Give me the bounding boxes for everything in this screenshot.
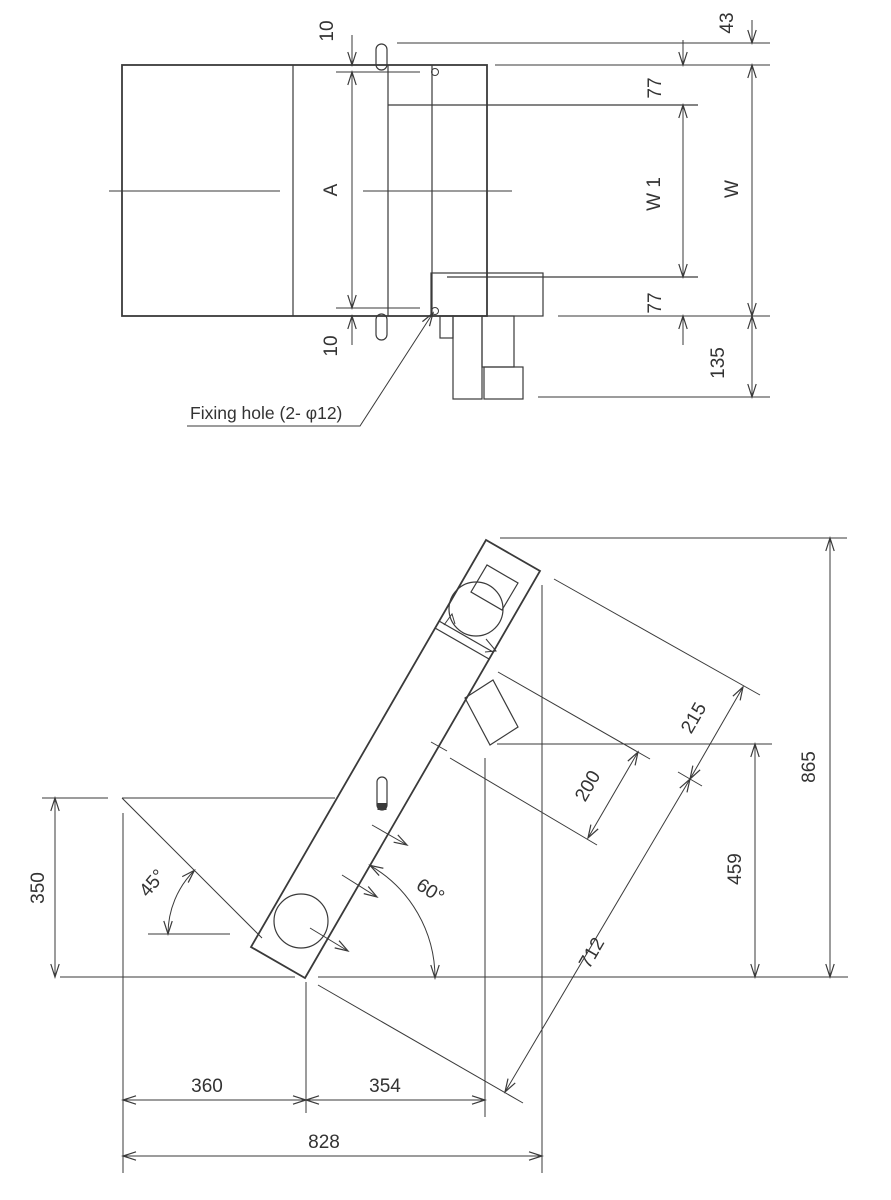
dim-label-354: 354 (369, 1076, 401, 1097)
dim-label-w1: W 1 (644, 177, 665, 211)
dim-line-200 (588, 752, 638, 838)
dim-label-459: 459 (725, 853, 746, 885)
ext-diagonal-foot (318, 985, 523, 1103)
plan-view (109, 44, 698, 399)
gear-reducer (482, 316, 514, 367)
dim-label-712: 712 (575, 934, 609, 972)
plan-view-dimensions: 10 A 10 77 W 1 77 43 W 135 Fixing hole (… (187, 12, 770, 426)
dim-label-865: 865 (799, 751, 820, 783)
bearing-line-2 (439, 621, 493, 652)
technical-drawing: 10 A 10 77 W 1 77 43 W 135 Fixing hole (… (0, 0, 891, 1200)
angle-label-60: 60° (412, 875, 448, 908)
mounting-slot-top (376, 44, 387, 70)
head-gearbox (471, 565, 518, 610)
flow-arrow-1 (372, 825, 407, 845)
ext-diagonal-head-corner (554, 579, 760, 695)
flow-arrow-3 (310, 928, 348, 951)
dim-label-215: 215 (677, 699, 711, 737)
dim-label-77-top: 77 (645, 77, 666, 98)
motor-terminal-box (484, 367, 523, 399)
mounting-slot-bottom (376, 314, 387, 340)
side-slot-fill (378, 803, 387, 810)
flow-arrow-2 (342, 875, 377, 897)
angle-label-45: 45° (136, 866, 171, 902)
dim-label-43: 43 (717, 12, 738, 33)
dim-label-350: 350 (28, 872, 49, 904)
motor-body (453, 316, 482, 399)
dim-label-10-top: 10 (317, 20, 338, 41)
dim-label-a: A (321, 183, 342, 196)
arc-45-degree (168, 870, 194, 934)
dim-line-712 (505, 779, 690, 1092)
edge-tick-200 (431, 742, 447, 751)
dim-label-77-bottom: 77 (645, 292, 666, 313)
dim-label-w: W (722, 180, 743, 198)
discharge-chute (465, 680, 518, 745)
elevation-view (251, 540, 540, 978)
dim-label-135: 135 (708, 347, 729, 379)
dim-label-360: 360 (191, 1076, 223, 1097)
elevation-view-dimensions: 45° 60° 350 865 459 712 215 200 3 (28, 538, 848, 1173)
dim-label-10-bottom: 10 (321, 335, 342, 356)
line-45-degree (122, 798, 262, 938)
drawing-sheet: 10 A 10 77 W 1 77 43 W 135 Fixing hole (… (0, 0, 891, 1200)
tail-pulley-circle (274, 894, 328, 948)
ext-diagonal-mid (450, 758, 597, 845)
ext-diagonal-chute-corner (498, 672, 650, 759)
fixing-hole-note: Fixing hole (2- φ12) (190, 403, 342, 423)
dim-label-828: 828 (308, 1132, 340, 1153)
motor-flange (440, 316, 453, 338)
head-pulley-circle (449, 582, 503, 636)
dim-label-200: 200 (571, 767, 605, 805)
dim-line-215 (690, 687, 743, 779)
conveyor-body-outline (251, 540, 540, 978)
